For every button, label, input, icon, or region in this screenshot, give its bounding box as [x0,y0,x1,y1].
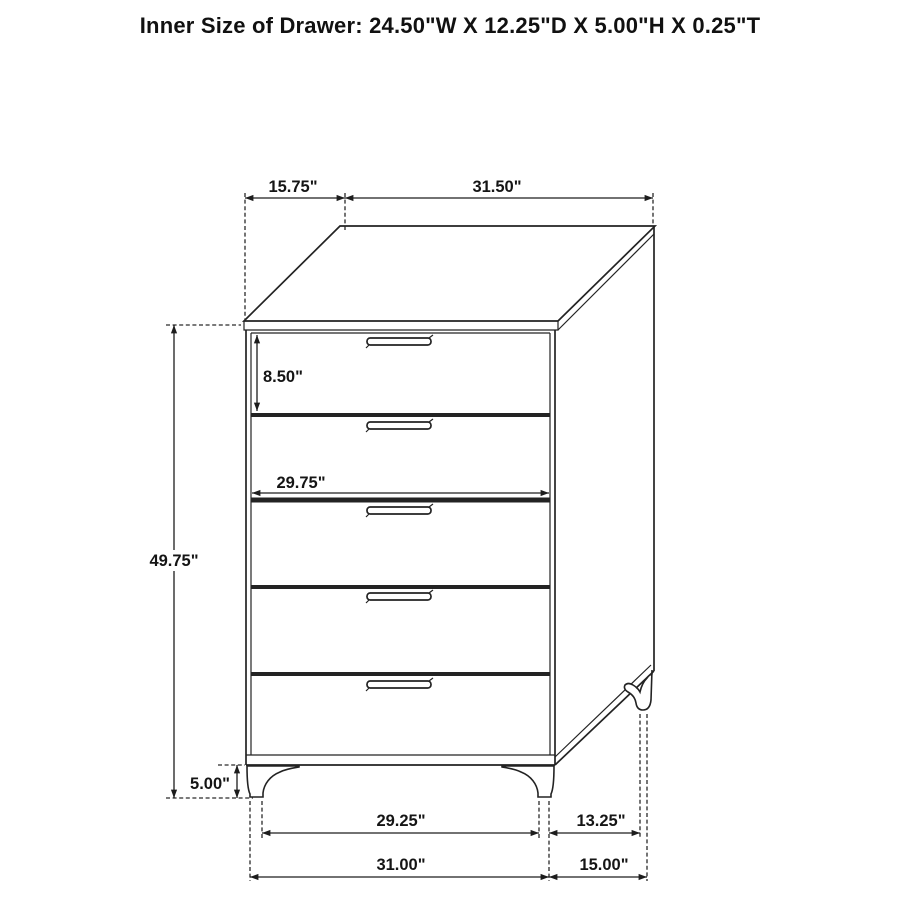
dim-label-leg-height: 5.00" [190,775,230,793]
dim-label-top-drawer-height: 8.50" [263,368,303,386]
drawer-5 [366,678,433,691]
front-left-leg [247,766,299,797]
back-right-leg [624,670,652,710]
drawer-3 [366,504,433,517]
dim-top-drawer-height: 8.50" [257,335,303,411]
dim-label-front-leg-spacing: 29.25" [376,812,425,830]
side-panel-bottom-edge [555,671,654,765]
drawer-handle-icon [367,507,431,514]
dim-label-case-height: 49.75" [149,552,198,570]
dim-side-leg-spacing: 13.25" [549,812,640,833]
chest-side-panel [555,227,654,765]
chest-drawing [244,226,655,797]
dim-label-top-width: 31.50" [472,178,521,196]
dim-leg-height: 5.00" [190,765,245,798]
top-slab-right-edge [558,234,654,330]
top-face-outline [244,226,655,321]
drawer-handle-icon [367,593,431,600]
drawer-handle-icon [367,422,431,429]
drawer-4 [366,590,433,603]
dim-overall-width: 31.00" [250,856,549,877]
chest-top-face [244,226,655,330]
extension-lines [245,193,345,321]
drawer-handle-icon [367,681,431,688]
dim-front-leg-spacing: 29.25" [262,812,539,833]
side-panel-bottom-inner [555,665,651,757]
dim-label-drawer-front-width: 29.75" [276,474,325,492]
front-right-leg [502,766,554,797]
furniture-dimension-diagram: 15.75" 31.50" 8.50" 29.75" 49.75" 5.00" [0,0,900,900]
drawer-handle-icon [367,338,431,345]
dim-label-overall-depth: 15.00" [579,856,628,874]
dim-label-overall-width: 31.00" [376,856,425,874]
dim-top-width: 31.50" [345,178,653,225]
dim-label-side-leg-spacing: 13.25" [576,812,625,830]
diagram-canvas: Inner Size of Drawer: 24.50"W X 12.25"D … [0,0,900,900]
dim-overall-depth: 15.00" [549,856,647,877]
dim-drawer-front-width: 29.75" [252,474,549,493]
dim-top-depth: 15.75" [245,178,345,321]
drawer-2 [366,419,433,432]
dim-label-top-depth: 15.75" [268,178,317,196]
top-slab-front-band [244,321,558,330]
drawer-1 [366,335,433,348]
dim-case-height: 49.75" [141,325,253,798]
chest-front-face [246,330,555,765]
